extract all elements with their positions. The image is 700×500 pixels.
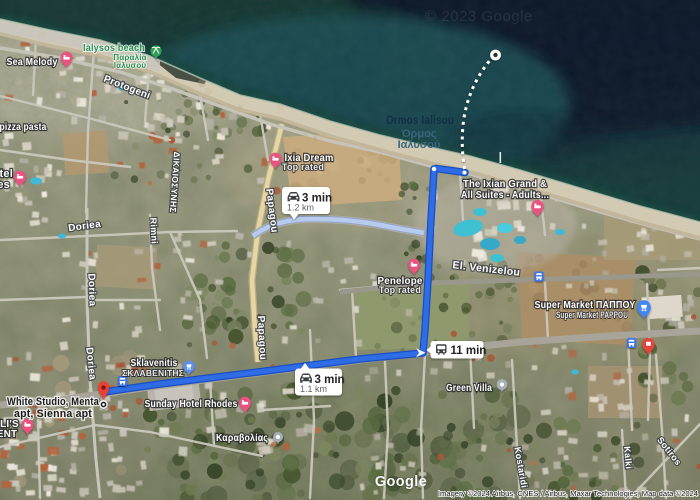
svg-text:All Suites - Adults...: All Suites - Adults... xyxy=(461,189,549,201)
svg-text:White Studio, Menta: White Studio, Menta xyxy=(7,396,100,408)
svg-text:Top rated: Top rated xyxy=(282,162,324,172)
svg-text:pizza pasta: pizza pasta xyxy=(0,121,47,133)
svg-text:11 min: 11 min xyxy=(451,345,487,357)
svg-text:Papagou: Papagou xyxy=(255,315,268,360)
svg-text:Καραβολίας: Καραβολίας xyxy=(216,433,268,444)
svg-text:Sea Melody: Sea Melody xyxy=(7,56,58,68)
svg-text:Ιαλυσού: Ιαλυσού xyxy=(114,61,147,70)
svg-text:des: des xyxy=(0,179,10,191)
svg-text:Rimni: Rimni xyxy=(148,217,159,244)
svg-text:1.1 km: 1.1 km xyxy=(300,384,327,394)
svg-text:Sunday Hotel Rhodes: Sunday Hotel Rhodes xyxy=(145,398,238,410)
svg-text:Google: Google xyxy=(375,474,427,490)
svg-text:Top rated: Top rated xyxy=(379,285,421,295)
svg-text:ΣΚΛΑΒΕΝΙΤΗΣ: ΣΚΛΑΒΕΝΙΤΗΣ xyxy=(122,368,184,378)
svg-text:Imagery ©2024 Airbus, CNES / A: Imagery ©2024 Airbus, CNES / Airbus, Max… xyxy=(438,489,698,498)
svg-text:Green Villa: Green Villa xyxy=(446,382,492,394)
svg-text:Ormos Ialisou: Ormos Ialisou xyxy=(386,113,454,127)
svg-text:ENT: ENT xyxy=(0,429,17,440)
svg-text:© 2023 Google: © 2023 Google xyxy=(425,8,533,25)
svg-text:Kalki: Kalki xyxy=(622,446,634,470)
svg-text:apt, Sienna apt: apt, Sienna apt xyxy=(14,408,92,420)
svg-text:1.2 km: 1.2 km xyxy=(287,203,314,213)
svg-text:Ιαλυσού: Ιαλυσού xyxy=(398,139,441,151)
svg-text:Doriea: Doriea xyxy=(85,273,97,306)
svg-text:Super Market PAPPOU: Super Market PAPPOU xyxy=(556,310,628,320)
